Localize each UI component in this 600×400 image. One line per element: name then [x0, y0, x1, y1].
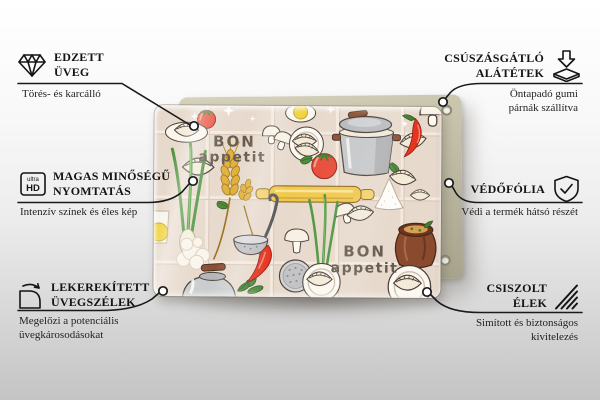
product-infographic: BON appetit BON appetit — [0, 0, 600, 400]
callout-protective-film: VÉDŐFÓLIA — [471, 175, 581, 203]
shield-check-icon — [552, 175, 581, 203]
pierogi-dish-illustration — [165, 122, 207, 142]
mounting-hole — [440, 255, 451, 266]
callout-tempered-glass: EDZETT ÜVEG — [17, 50, 104, 80]
print-text-bottom-line1: BON — [343, 242, 386, 260]
ultra-hd-icon: ultra HD — [20, 172, 46, 196]
tomato-illustration — [312, 154, 337, 179]
anti-slip-pads-icon — [551, 50, 582, 82]
polished-edges-icon — [554, 283, 579, 310]
clay-pot-illustration — [395, 221, 436, 268]
callout-subtitle: Öntapadó gumi párnák szállítva — [509, 88, 578, 115]
callout-anti-slip-pads: CSÚSZÁSGÁTLÓ ALÁTÉTEK — [444, 50, 582, 82]
callout-subtitle: Intenzív színek és éles kép — [20, 206, 137, 220]
oil-bowl-illustration — [286, 105, 316, 122]
callout-subtitle: Megelőzi a potenciális üvegkárosodásokat — [19, 315, 119, 342]
kitchen-artwork: BON appetit BON appetit — [153, 105, 441, 298]
svg-text:HD: HD — [26, 183, 40, 194]
callout-subtitle: Simított és biztonságos kivitelezés — [476, 317, 578, 344]
mounting-hole — [441, 105, 452, 116]
callout-title: VÉDŐFÓLIA — [471, 182, 545, 197]
print-text-top-line2: appetit — [198, 149, 266, 165]
callout-subtitle: Védi a termék hátsó részét — [461, 206, 578, 220]
callout-title: MAGAS MINŐSÉGŰ NYOMTATÁS — [53, 169, 170, 199]
callout-polished-edges: CSISZOLT ÉLEK — [486, 281, 579, 311]
diamond-icon — [17, 52, 47, 79]
print-text-bottom-line2: appetit — [331, 260, 399, 276]
callout-high-quality-print: ultra HD MAGAS MINŐSÉGŰ NYOMTATÁS — [20, 169, 170, 199]
glass-board: BON appetit BON appetit — [153, 105, 441, 298]
callout-subtitle: Törés- és karcálló — [22, 88, 101, 102]
print-text-top-line1: BON — [213, 132, 256, 150]
oil-glass-illustration — [153, 211, 169, 243]
callout-title: LEKEREKÍTETT ÜVEGSZÉLEK — [51, 280, 149, 310]
callout-title: CSISZOLT ÉLEK — [486, 281, 547, 311]
callout-title: EDZETT ÜVEG — [54, 50, 104, 80]
rounded-corner-icon — [16, 282, 44, 309]
callout-title: CSÚSZÁSGÁTLÓ ALÁTÉTEK — [444, 51, 544, 81]
callout-rounded-edges: LEKEREKÍTETT ÜVEGSZÉLEK — [16, 280, 149, 310]
